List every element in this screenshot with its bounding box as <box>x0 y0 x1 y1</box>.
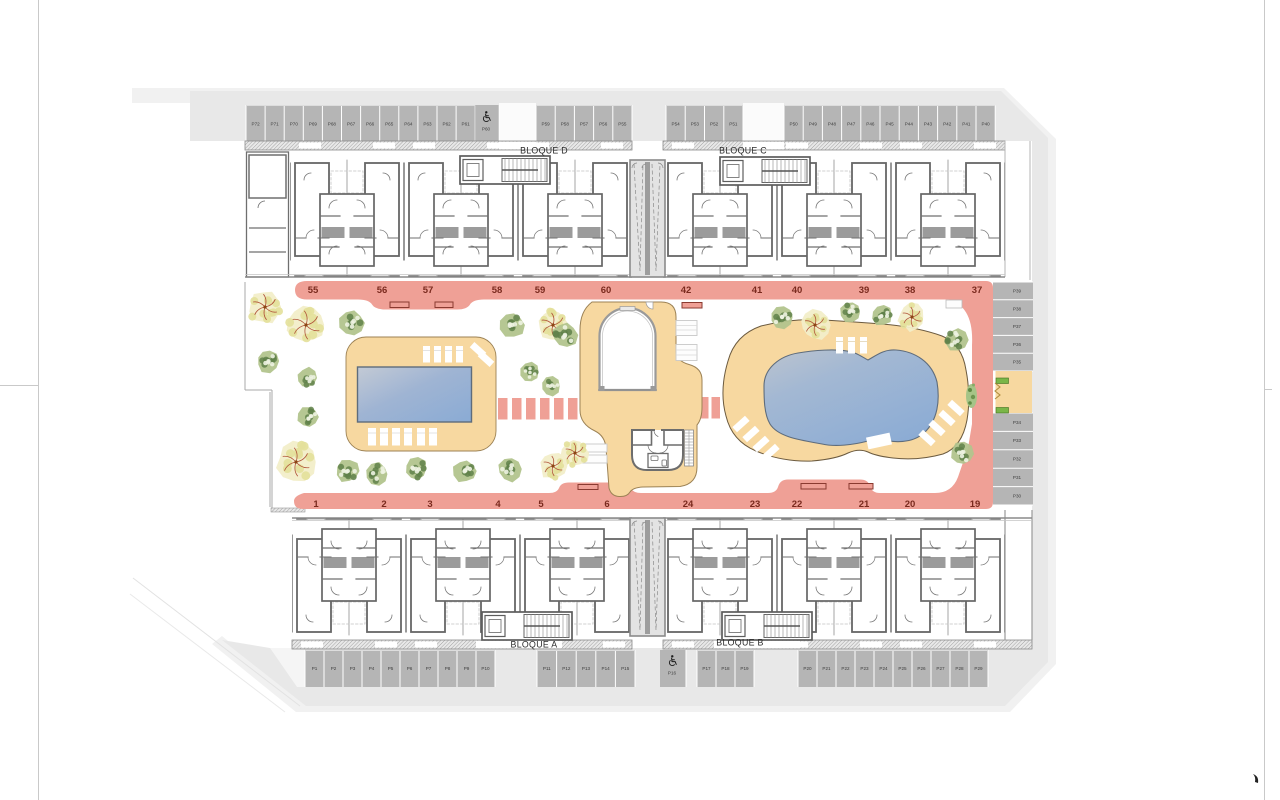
svg-text:P69: P69 <box>309 122 318 127</box>
svg-text:P47: P47 <box>847 122 856 127</box>
svg-text:59: 59 <box>535 285 546 296</box>
svg-text:P35: P35 <box>1013 360 1022 365</box>
svg-text:P10: P10 <box>481 666 490 671</box>
svg-text:P51: P51 <box>729 122 738 127</box>
svg-text:P17: P17 <box>702 666 711 671</box>
svg-text:P61: P61 <box>462 122 471 127</box>
svg-text:P37: P37 <box>1013 324 1022 329</box>
svg-text:BLOQUE A: BLOQUE A <box>511 640 558 650</box>
svg-text:40: 40 <box>792 285 803 296</box>
svg-text:P65: P65 <box>385 122 394 127</box>
svg-text:BLOQUE C: BLOQUE C <box>719 146 767 156</box>
svg-text:60: 60 <box>601 285 612 296</box>
svg-text:P31: P31 <box>1013 475 1022 480</box>
svg-text:P9: P9 <box>464 666 470 671</box>
svg-text:37: 37 <box>972 285 983 296</box>
svg-text:P16: P16 <box>668 671 677 676</box>
svg-text:P64: P64 <box>404 122 413 127</box>
svg-text:BLOQUE B: BLOQUE B <box>716 638 763 648</box>
svg-text:P6: P6 <box>407 666 413 671</box>
svg-text:P25: P25 <box>898 666 907 671</box>
svg-text:1: 1 <box>313 499 319 510</box>
svg-text:P28: P28 <box>955 666 964 671</box>
svg-text:P33: P33 <box>1013 438 1022 443</box>
svg-text:P49: P49 <box>809 122 818 127</box>
svg-text:P41: P41 <box>962 122 971 127</box>
svg-text:P30: P30 <box>1013 493 1022 498</box>
svg-text:P60: P60 <box>482 127 491 132</box>
svg-text:P55: P55 <box>618 122 627 127</box>
svg-text:P29: P29 <box>974 666 983 671</box>
svg-text:42: 42 <box>681 285 692 296</box>
svg-text:P34: P34 <box>1013 420 1022 425</box>
svg-text:P58: P58 <box>561 122 570 127</box>
svg-text:55: 55 <box>308 285 319 296</box>
svg-text:P56: P56 <box>599 122 608 127</box>
svg-text:39: 39 <box>859 285 870 296</box>
svg-text:P63: P63 <box>423 122 432 127</box>
svg-text:57: 57 <box>423 285 434 296</box>
svg-text:P72: P72 <box>252 122 261 127</box>
svg-text:P32: P32 <box>1013 457 1022 462</box>
svg-text:P40: P40 <box>982 122 991 127</box>
svg-text:P57: P57 <box>580 122 589 127</box>
svg-text:P13: P13 <box>582 666 591 671</box>
svg-text:4: 4 <box>495 499 501 510</box>
svg-text:P53: P53 <box>691 122 700 127</box>
svg-text:P42: P42 <box>943 122 952 127</box>
svg-text:22: 22 <box>792 499 803 510</box>
svg-text:3: 3 <box>427 499 432 510</box>
svg-text:P46: P46 <box>866 122 875 127</box>
svg-text:23: 23 <box>750 499 761 510</box>
svg-text:P52: P52 <box>710 122 719 127</box>
svg-text:P26: P26 <box>917 666 926 671</box>
svg-text:P5: P5 <box>388 666 394 671</box>
svg-text:P50: P50 <box>790 122 799 127</box>
svg-text:P36: P36 <box>1013 342 1022 347</box>
svg-text:P8: P8 <box>445 666 451 671</box>
svg-text:21: 21 <box>859 499 870 510</box>
svg-text:P20: P20 <box>803 666 812 671</box>
svg-text:56: 56 <box>377 285 388 296</box>
svg-text:19: 19 <box>970 499 981 510</box>
svg-text:P4: P4 <box>369 666 375 671</box>
svg-text:P7: P7 <box>426 666 432 671</box>
svg-text:P15: P15 <box>621 666 630 671</box>
svg-text:P48: P48 <box>828 122 837 127</box>
svg-text:P18: P18 <box>721 666 730 671</box>
svg-text:P44: P44 <box>905 122 914 127</box>
svg-text:38: 38 <box>905 285 916 296</box>
svg-text:P1: P1 <box>312 666 318 671</box>
svg-text:P39: P39 <box>1013 289 1022 294</box>
svg-text:P2: P2 <box>331 666 337 671</box>
svg-text:P54: P54 <box>672 122 681 127</box>
svg-text:P23: P23 <box>860 666 869 671</box>
svg-text:58: 58 <box>492 285 503 296</box>
svg-text:P11: P11 <box>543 666 551 671</box>
svg-text:BLOQUE D: BLOQUE D <box>520 146 568 156</box>
svg-text:41: 41 <box>752 285 763 296</box>
svg-text:P21: P21 <box>822 666 831 671</box>
svg-text:P66: P66 <box>366 122 375 127</box>
svg-text:P62: P62 <box>443 122 452 127</box>
svg-text:P59: P59 <box>542 122 551 127</box>
svg-text:24: 24 <box>683 499 694 510</box>
svg-text:P67: P67 <box>347 122 356 127</box>
svg-text:P24: P24 <box>879 666 888 671</box>
svg-text:P71: P71 <box>271 122 280 127</box>
svg-text:2: 2 <box>381 499 386 510</box>
svg-text:P45: P45 <box>886 122 895 127</box>
svg-text:P3: P3 <box>350 666 356 671</box>
svg-text:P43: P43 <box>924 122 933 127</box>
svg-text:P12: P12 <box>562 666 571 671</box>
svg-text:P38: P38 <box>1013 306 1022 311</box>
svg-text:P27: P27 <box>936 666 945 671</box>
svg-text:P68: P68 <box>328 122 337 127</box>
svg-text:20: 20 <box>905 499 916 510</box>
svg-text:6: 6 <box>604 499 609 510</box>
svg-text:P22: P22 <box>841 666 850 671</box>
svg-text:P19: P19 <box>740 666 749 671</box>
svg-text:P70: P70 <box>290 122 299 127</box>
svg-text:5: 5 <box>538 499 544 510</box>
svg-text:P14: P14 <box>602 666 611 671</box>
